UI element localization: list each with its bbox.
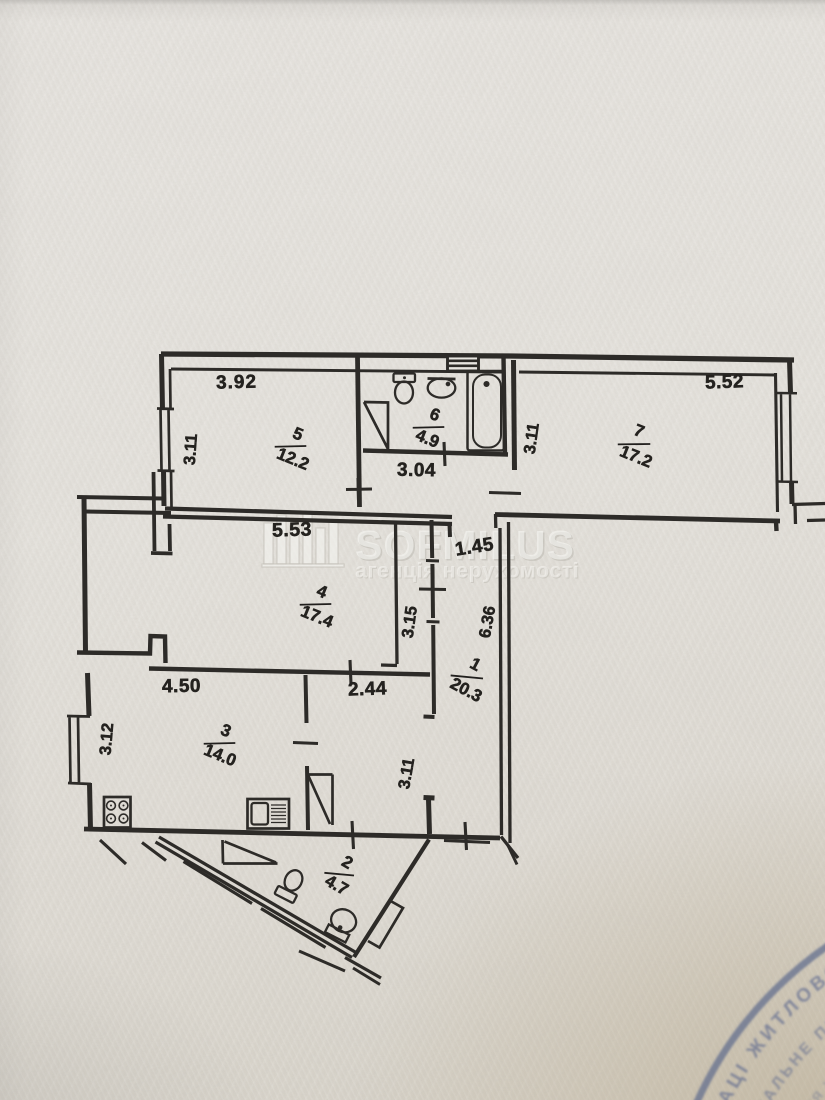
svg-text:3.11: 3.11 [181, 433, 201, 465]
svg-text:3.12: 3.12 [97, 722, 118, 756]
svg-text:2.44: 2.44 [348, 678, 388, 700]
svg-text:4.50: 4.50 [162, 676, 201, 698]
svg-text:3.04: 3.04 [397, 460, 436, 482]
svg-text:агенція нерухомості: агенція нерухомості [355, 559, 579, 583]
svg-text:3.92: 3.92 [216, 372, 258, 394]
svg-text:5.52: 5.52 [705, 371, 745, 393]
svg-text:5.53: 5.53 [272, 518, 313, 541]
